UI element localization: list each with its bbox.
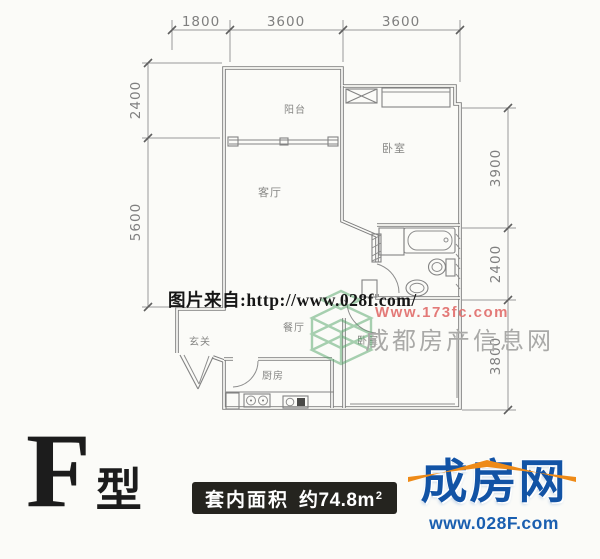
dimension-lines-left: 2400 5600 xyxy=(128,59,222,311)
dim-label-top-2: 3600 xyxy=(267,14,305,30)
balcony-sliding-door xyxy=(228,137,338,146)
area-value: 约74.8m xyxy=(299,485,375,512)
room-label-bedroom-top: 卧室 xyxy=(382,141,406,155)
dim-label-right-2: 2400 xyxy=(488,245,504,283)
dim-label-left-1: 2400 xyxy=(128,81,144,119)
floorplan-svg: 1800 3600 3600 2400 5600 3900 2400 3800 xyxy=(0,0,600,430)
dimension-lines-right: 3900 2400 3800 xyxy=(462,104,516,414)
logo-roof-icon xyxy=(408,458,576,484)
stove-symbol xyxy=(244,394,270,407)
dim-label-top-3: 3600 xyxy=(382,14,420,30)
unit-type-title: F 型 xyxy=(26,430,142,513)
dim-label-top-1: 1800 xyxy=(182,14,220,30)
shaft-symbol xyxy=(346,89,377,103)
kitchen-door-arc xyxy=(233,361,258,387)
dim-label-left-2: 5600 xyxy=(128,203,144,241)
unit-type-suffix: 型 xyxy=(96,470,142,512)
toilet-symbol xyxy=(429,259,456,276)
room-label-kitchen: 厨房 xyxy=(262,369,284,382)
scanned-floorplan-page: 1800 3600 3600 2400 5600 3900 2400 3800 xyxy=(0,0,600,559)
chengfang-logo: 成房网 www.028F.com xyxy=(408,458,580,550)
watermark-site-name: 成都房产信息网 xyxy=(365,321,554,356)
room-label-dining: 餐厅 xyxy=(283,321,305,334)
dimension-lines-top: 1800 3600 3600 xyxy=(168,14,464,82)
area-badge: 套内面积 约74.8m2 xyxy=(192,482,397,514)
room-label-living: 客厅 xyxy=(258,185,282,199)
logo-url-text: www.028F.com xyxy=(408,513,580,534)
watermark-site-url: Www.173fc.com xyxy=(375,304,509,321)
bathtub-symbol xyxy=(379,228,455,255)
unit-type-letter: F xyxy=(26,430,91,513)
area-superscript: 2 xyxy=(376,490,384,502)
entry-door-swing xyxy=(180,355,213,389)
dim-label-right-1: 3900 xyxy=(488,149,504,187)
room-label-balcony: 阳台 xyxy=(284,103,306,116)
bay-window xyxy=(382,88,450,107)
outer-walls xyxy=(177,68,460,408)
room-label-entry: 玄关 xyxy=(189,335,211,348)
area-label: 套内面积 xyxy=(205,485,289,512)
